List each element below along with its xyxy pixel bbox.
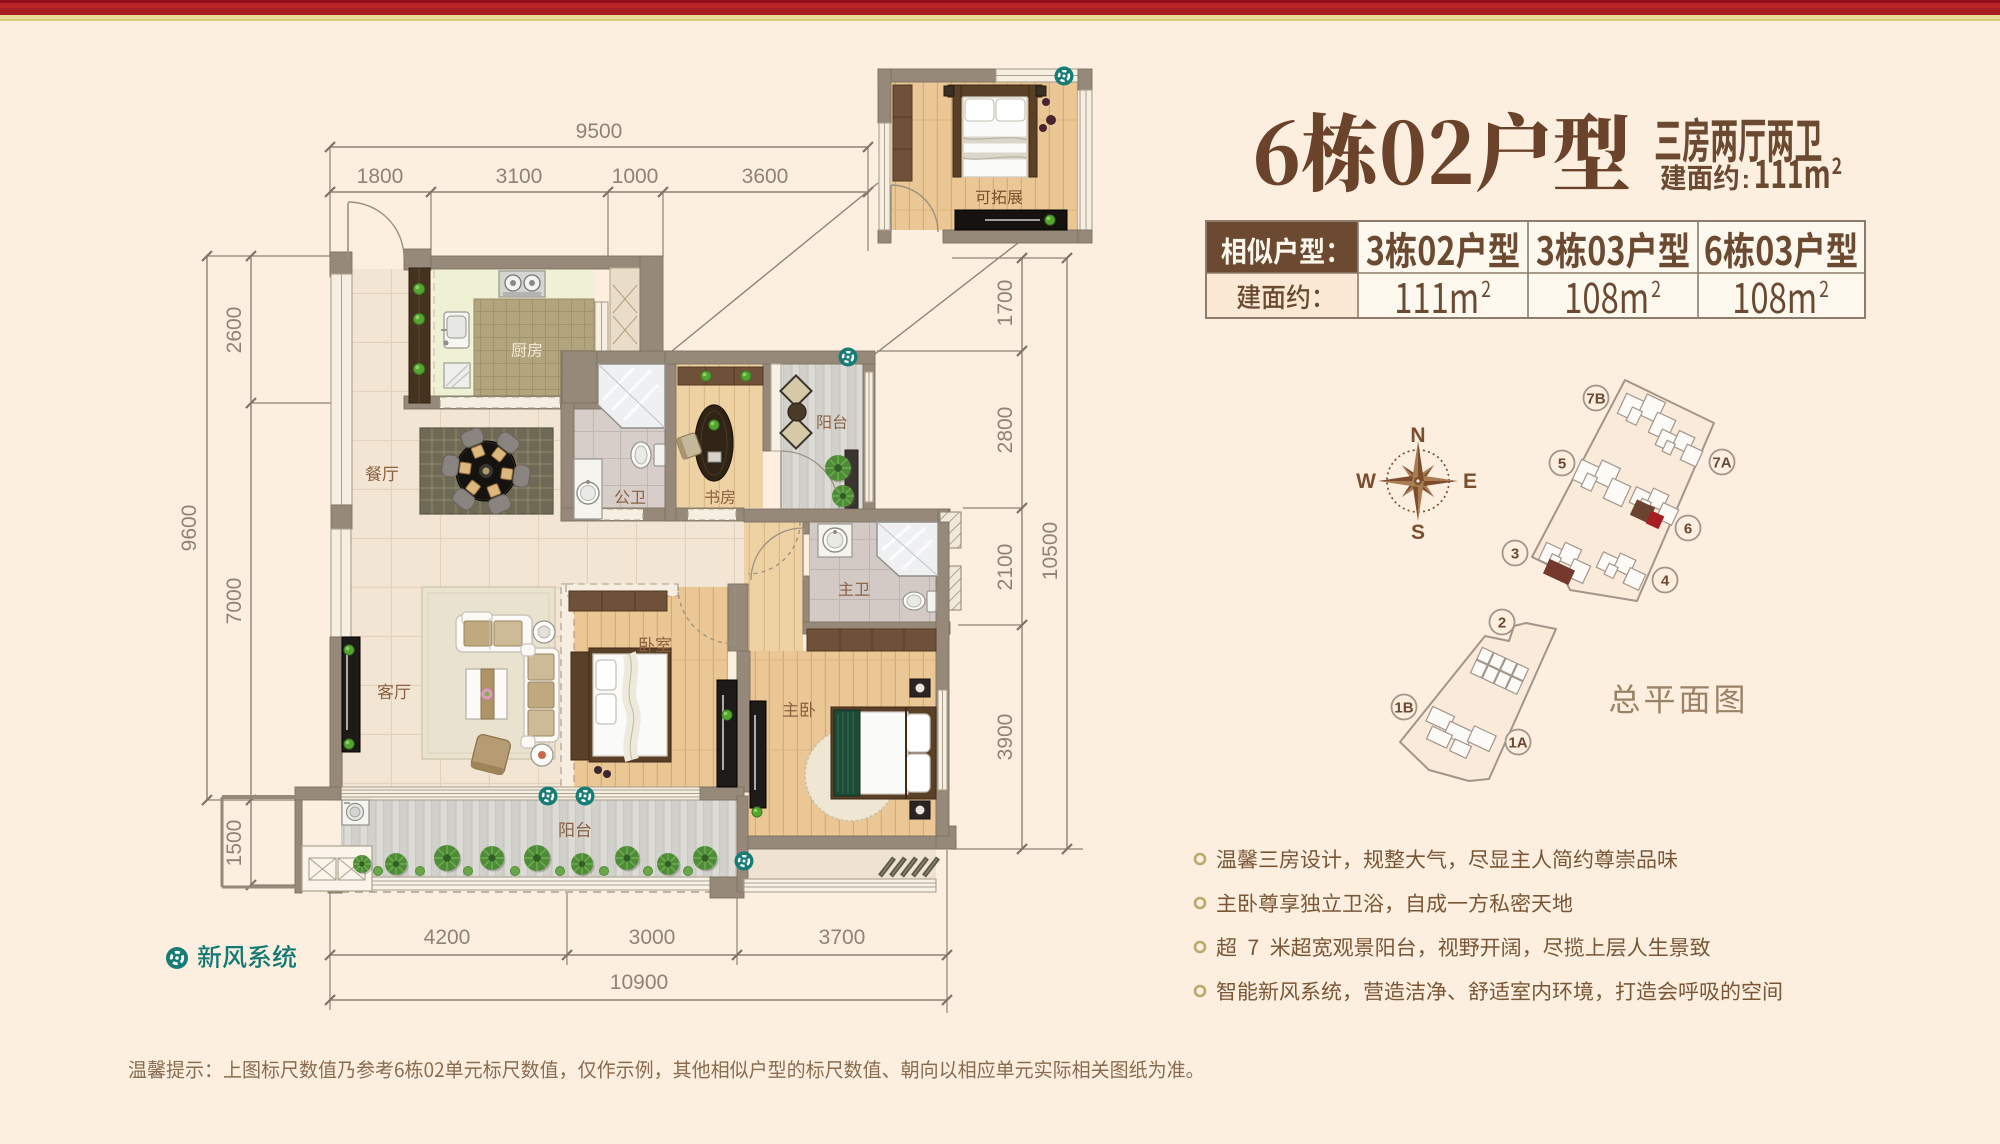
svg-text:3700: 3700 [819, 926, 866, 949]
svg-text:1B: 1B [1394, 700, 1413, 717]
svg-text:1700: 1700 [994, 280, 1017, 327]
svg-text:2: 2 [1498, 615, 1506, 632]
svg-text:2800: 2800 [994, 407, 1017, 454]
svg-text::: : [1741, 164, 1750, 194]
svg-text:1800: 1800 [357, 165, 404, 188]
svg-text:1500: 1500 [223, 820, 246, 867]
svg-text:7A: 7A [1712, 455, 1731, 472]
svg-text:9500: 9500 [576, 120, 623, 143]
svg-text:4200: 4200 [424, 926, 471, 949]
svg-text:6: 6 [1684, 521, 1692, 538]
svg-text:2600: 2600 [223, 307, 246, 354]
svg-text:10900: 10900 [610, 971, 668, 994]
svg-text:3600: 3600 [742, 165, 789, 188]
svg-text:E: E [1463, 470, 1477, 493]
svg-text:N: N [1410, 424, 1425, 447]
svg-text:4: 4 [1661, 573, 1670, 590]
svg-text:9600: 9600 [178, 505, 201, 552]
svg-text:7000: 7000 [223, 578, 246, 625]
svg-text:W: W [1356, 470, 1376, 493]
svg-text:3100: 3100 [496, 165, 543, 188]
svg-text:3900: 3900 [994, 714, 1017, 761]
svg-text:S: S [1411, 521, 1425, 544]
svg-text:3: 3 [1511, 546, 1519, 563]
svg-text:10500: 10500 [1039, 522, 1062, 580]
svg-text:2100: 2100 [994, 544, 1017, 591]
svg-text:1A: 1A [1508, 735, 1527, 752]
svg-text:5: 5 [1558, 456, 1566, 473]
svg-text:3000: 3000 [629, 926, 676, 949]
svg-text:7B: 7B [1586, 391, 1605, 408]
svg-text:1000: 1000 [612, 165, 659, 188]
